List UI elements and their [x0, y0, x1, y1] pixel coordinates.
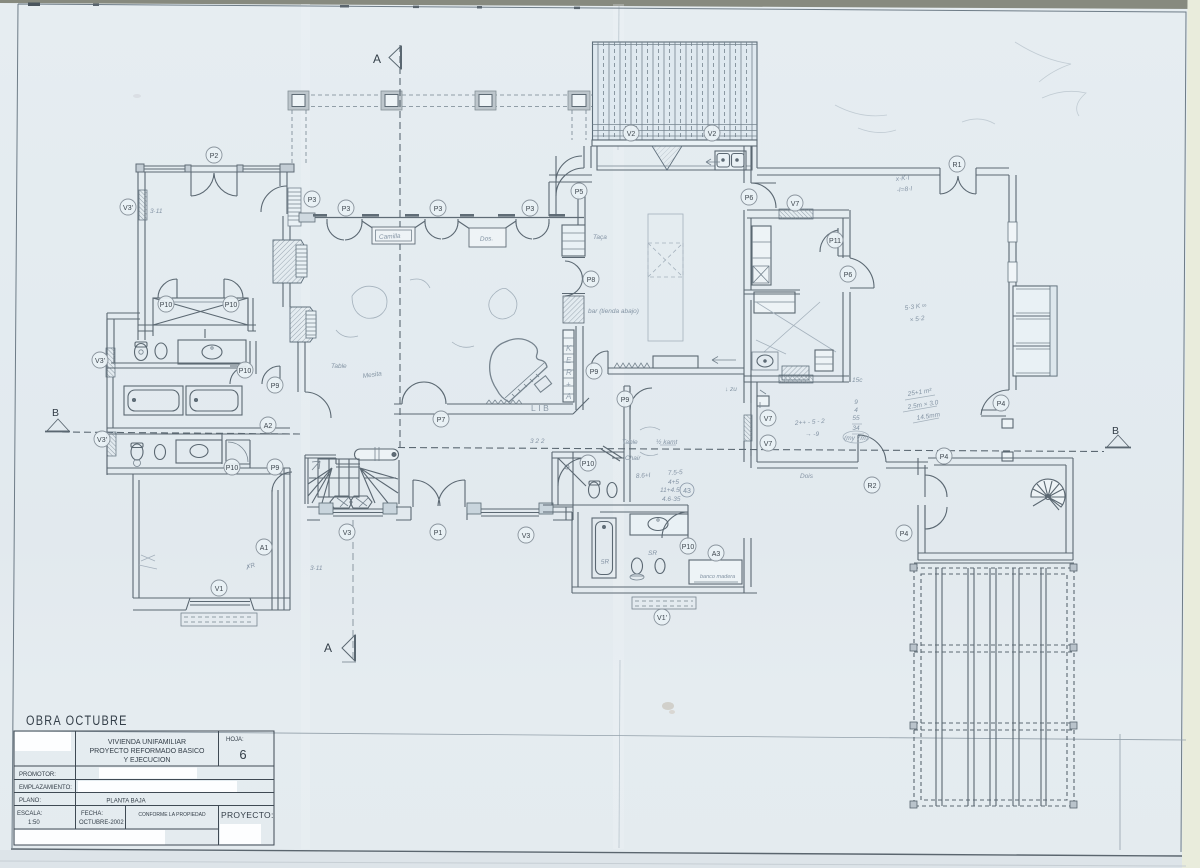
svg-text:P1: P1	[434, 530, 443, 537]
svg-text:P3: P3	[342, 206, 351, 213]
svg-text:K: K	[566, 344, 572, 353]
svg-text:4: 4	[854, 407, 858, 414]
svg-text:P10: P10	[226, 465, 239, 472]
svg-text:4.6·35: 4.6·35	[662, 496, 681, 503]
svg-text:P10: P10	[582, 461, 595, 468]
svg-text:6: 6	[239, 747, 246, 762]
svg-text:Taça: Taça	[593, 234, 607, 241]
svg-text:PLANO:: PLANO:	[19, 798, 41, 804]
svg-text:P7: P7	[437, 417, 446, 424]
svg-text:V3': V3'	[97, 437, 107, 444]
svg-text:V2: V2	[627, 131, 636, 138]
svg-text:Chair: Chair	[625, 455, 641, 462]
svg-text:V3: V3	[522, 533, 531, 540]
svg-text:P3: P3	[434, 206, 443, 213]
svg-text:V3': V3'	[95, 358, 105, 365]
svg-text:3·11: 3·11	[310, 565, 323, 572]
svg-text:P8: P8	[587, 277, 596, 284]
svg-text:V1: V1	[215, 586, 224, 593]
svg-text:4+5: 4+5	[668, 479, 679, 486]
svg-text:Dois: Dois	[800, 473, 814, 480]
svg-text:P2: P2	[210, 153, 219, 160]
svg-text:PROYECTO REFORMADO BASICO: PROYECTO REFORMADO BASICO	[90, 748, 206, 755]
svg-text:P9: P9	[271, 465, 280, 472]
svg-text:P3: P3	[526, 206, 535, 213]
svg-text:VIVIENDA UNIFAMILIAR: VIVIENDA UNIFAMILIAR	[108, 739, 186, 746]
svg-text:banco madera: banco madera	[700, 574, 735, 580]
svg-text:A: A	[373, 52, 381, 66]
svg-text:ESCALA:: ESCALA:	[17, 811, 43, 817]
svg-text:bar (tienda abajo): bar (tienda abajo)	[588, 308, 639, 315]
svg-text:V1': V1'	[657, 615, 667, 622]
svg-text:11+4.5: 11+4.5	[660, 487, 680, 494]
svg-text:P6: P6	[745, 195, 754, 202]
svg-text:→ -9: → -9	[805, 431, 819, 438]
svg-text:Dos.: Dos.	[480, 235, 494, 243]
svg-text:P6: P6	[844, 272, 853, 279]
svg-text:P10: P10	[239, 368, 252, 375]
svg-text:P9: P9	[590, 369, 599, 376]
svg-text:E: E	[566, 356, 572, 365]
svg-text:EMPLAZAMIENTO:: EMPLAZAMIENTO:	[19, 785, 72, 791]
svg-text:CONFORME LA PROPIEDAD: CONFORME LA PROPIEDAD	[138, 812, 206, 818]
svg-text:15c: 15c	[852, 377, 863, 384]
svg-text:R: R	[566, 368, 572, 377]
svg-text:P9: P9	[621, 397, 630, 404]
svg-text:P4: P4	[940, 454, 949, 461]
svg-text:FECHA:: FECHA:	[81, 811, 103, 817]
svg-text:3 2 2: 3 2 2	[530, 438, 545, 445]
svg-text:OBRA OCTUBRE: OBRA OCTUBRE	[26, 713, 128, 729]
svg-text:Y EJECUCION: Y EJECUCION	[124, 757, 171, 764]
svg-text:P10: P10	[682, 544, 695, 551]
svg-text:Table: Table	[622, 439, 638, 446]
svg-text:P11: P11	[829, 238, 841, 245]
svg-text:V3': V3'	[123, 205, 133, 212]
svg-text:V3: V3	[343, 530, 352, 537]
svg-text:A2: A2	[264, 423, 273, 430]
svg-text:P5: P5	[575, 189, 584, 196]
svg-text:A: A	[324, 641, 332, 655]
svg-text:LIB: LIB	[531, 403, 551, 413]
svg-text:5R: 5R	[601, 558, 610, 566]
svg-text:7.5-5: 7.5-5	[668, 469, 684, 477]
svg-text:↓ zu: ↓ zu	[725, 386, 737, 393]
svg-text:(my 7m): (my 7m)	[844, 435, 868, 442]
svg-text:Table: Table	[331, 363, 347, 370]
svg-text:SR: SR	[648, 550, 657, 557]
svg-text:P9: P9	[271, 383, 280, 390]
svg-text:R2: R2	[868, 483, 877, 490]
svg-text:V7: V7	[764, 416, 773, 423]
svg-text:+: +	[566, 380, 571, 389]
svg-text:B: B	[52, 407, 59, 419]
svg-text:P4: P4	[900, 531, 909, 538]
svg-text:V7: V7	[791, 201, 800, 208]
svg-text:PLANTA BAJA: PLANTA BAJA	[106, 799, 145, 805]
svg-text:55: 55	[852, 415, 860, 422]
svg-text:1:50: 1:50	[28, 820, 40, 826]
svg-text:½ kamt: ½ kamt	[656, 438, 679, 446]
svg-text:PROYECTO:: PROYECTO:	[221, 810, 274, 820]
svg-text:8.6+I: 8.6+I	[636, 472, 651, 480]
svg-text:9: 9	[854, 399, 858, 406]
svg-text:P10: P10	[160, 302, 173, 309]
svg-text:R1: R1	[953, 162, 962, 169]
svg-text:P10: P10	[225, 302, 238, 309]
svg-text:A: A	[565, 392, 571, 401]
svg-text:P4: P4	[997, 401, 1006, 408]
svg-text:A1: A1	[260, 545, 269, 552]
svg-text:A3: A3	[712, 551, 721, 558]
svg-text:OCTUBRE-2002: OCTUBRE-2002	[79, 820, 124, 826]
svg-text:PROMOTOR:: PROMOTOR:	[19, 772, 56, 778]
svg-text:3·11: 3·11	[150, 208, 163, 215]
svg-text:V2: V2	[708, 131, 717, 138]
svg-text:HOJA:: HOJA:	[226, 737, 244, 743]
svg-text:43: 43	[683, 488, 691, 495]
svg-text:V7: V7	[764, 441, 773, 448]
svg-text:Camilla: Camilla	[379, 233, 401, 241]
svg-text:P3: P3	[308, 197, 317, 204]
